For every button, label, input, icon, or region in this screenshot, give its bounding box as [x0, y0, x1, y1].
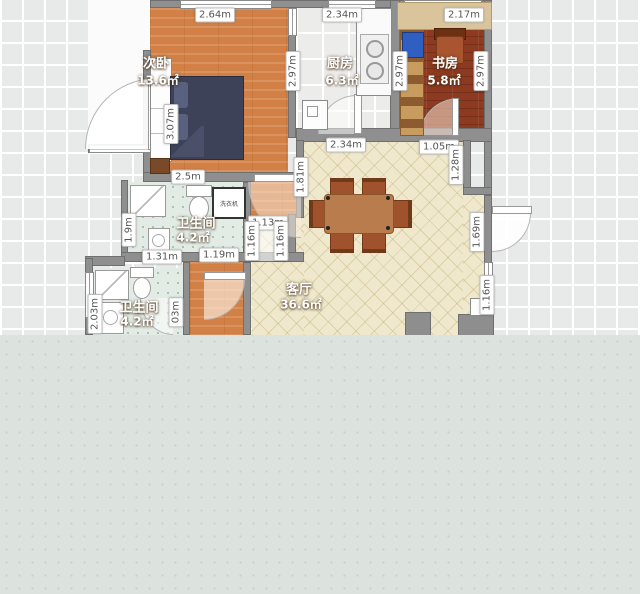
dining-table[interactable] [324, 194, 394, 234]
dim-entry-door: 1.69m [470, 212, 485, 252]
kitchen-door-leaf[interactable] [354, 94, 362, 134]
dim-entry-step: 1.28m [449, 145, 464, 185]
dim-kitchen-right: 2.97m [393, 51, 408, 91]
room-area-bath2: 4.2㎡ [120, 313, 153, 330]
dim-alcove-left: 1.16m [245, 221, 260, 261]
room-label-kitchen: 厨房 [327, 53, 353, 72]
dim-alcove-right: 1.16m [274, 221, 289, 261]
living-furniture-cut[interactable] [458, 314, 494, 336]
dim-study-width: 2.17m [444, 8, 484, 23]
kitchen-appliance-door [307, 106, 318, 117]
window-bedroom-right-stub[interactable] [288, 8, 297, 36]
entry-door-arc[interactable] [492, 213, 531, 252]
dim-bath1-bottom-a: 1.31m [142, 250, 182, 265]
bathroom-sink-basin [152, 234, 165, 247]
room-label-bedroom: 次卧 [143, 53, 169, 72]
dim-living-top: 2.34m [326, 138, 366, 153]
dim-bedroom-left: 3.07m [164, 104, 179, 144]
dim-living-right-lower: 1.16m [480, 275, 495, 315]
bottom-overlay-panel [0, 335, 640, 594]
dim-bedroom-width: 2.64m [195, 8, 235, 23]
stove-burner [366, 40, 384, 58]
room-area-bedroom: 13.6㎡ [137, 72, 179, 89]
living-furniture-cut[interactable] [405, 312, 431, 336]
stove-burner [366, 62, 384, 80]
bathroom-sink-basin [103, 310, 118, 325]
entry-door-leaf[interactable] [492, 206, 532, 214]
dim-study-right: 2.97m [474, 51, 489, 91]
dim-living-left: 1.81m [294, 157, 309, 197]
wall-entry-step [463, 187, 492, 195]
dining-chair[interactable] [393, 200, 412, 228]
dining-chair[interactable] [362, 231, 386, 253]
dining-chair[interactable] [330, 231, 354, 253]
washing-machine-label: 洗衣机 [220, 199, 238, 208]
room-area-bath1: 4.2㎡ [176, 229, 209, 246]
room-label-study: 书房 [432, 53, 458, 72]
dim-bedroom-right: 2.97m [286, 51, 301, 91]
wall-bath2-foyer [183, 262, 190, 335]
wall-study-right [484, 0, 492, 200]
dim-bath1-left: 1.9m [122, 213, 137, 247]
foyer-door-leaf[interactable] [204, 272, 246, 280]
floorplan-canvas: 洗衣机 次卧 13.6㎡ 厨房 6.3㎡ 书房 5.8㎡ 卫生间 4.2㎡ 卫生… [0, 0, 640, 594]
dim-bath2-right-clipped: 03m [169, 297, 184, 327]
table-corner [326, 196, 330, 200]
table-corner [326, 226, 330, 230]
table-corner [386, 226, 390, 230]
table-corner [386, 196, 390, 200]
nightstand[interactable] [150, 158, 170, 174]
washing-machine[interactable]: 洗衣机 [212, 187, 246, 219]
room-area-study: 5.8㎡ [427, 72, 460, 89]
room-area-living: 36.6㎡ [280, 296, 322, 313]
dim-bath1-bottom-b: 1.19m [199, 248, 239, 263]
dim-bath2-left: 2.03m [88, 294, 103, 334]
study-door-leaf[interactable] [452, 98, 459, 136]
dim-kitchen-width: 2.34m [322, 8, 362, 23]
dim-bedroom-bottom: 2.5m [171, 170, 205, 185]
room-area-kitchen: 6.3㎡ [325, 72, 358, 89]
